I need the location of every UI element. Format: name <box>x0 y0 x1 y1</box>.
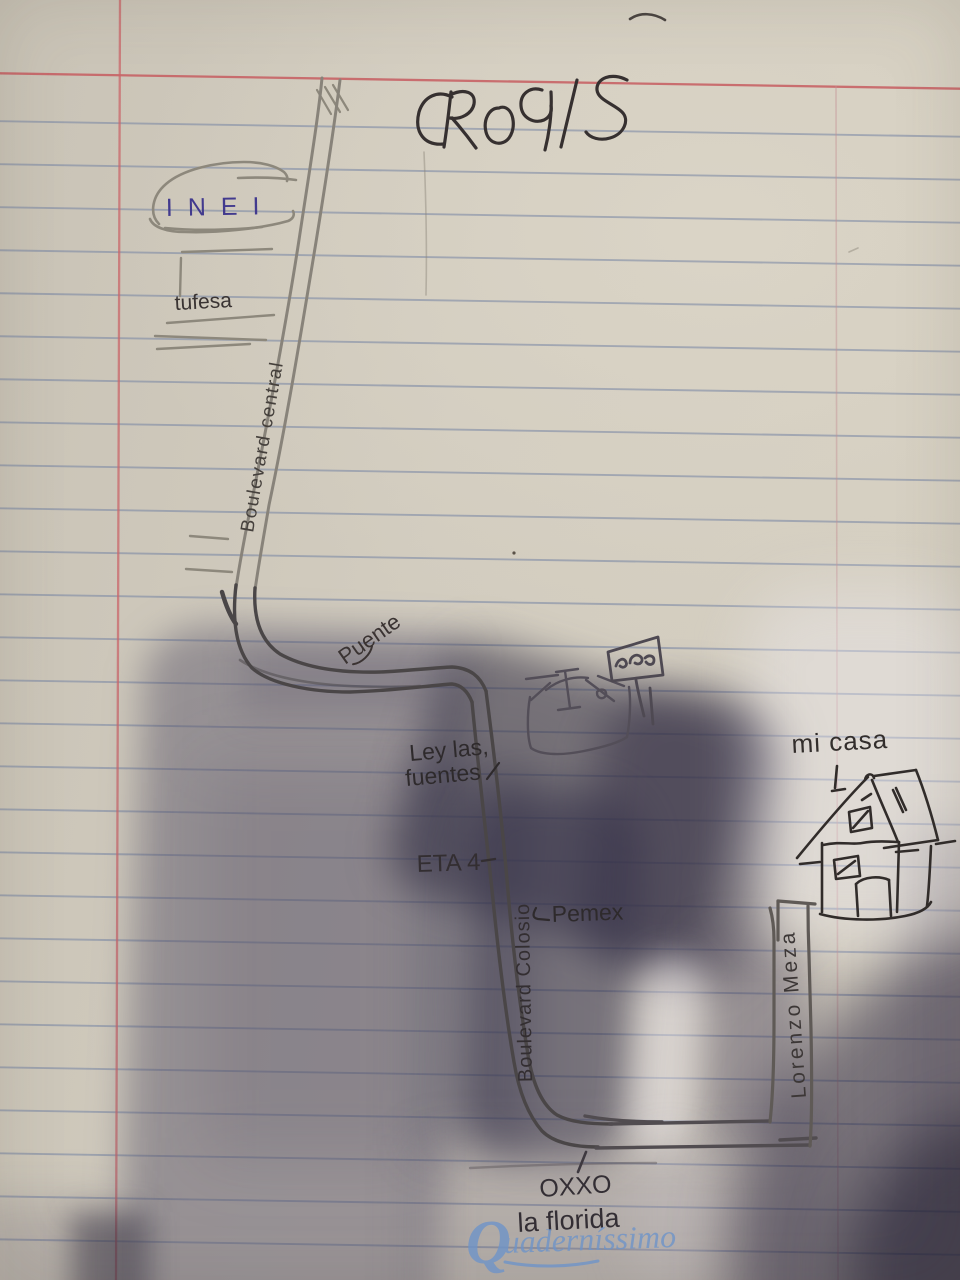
svg-text:Puente: Puente <box>334 609 405 669</box>
svg-text:tufesa: tufesa <box>174 289 233 315</box>
svg-text:mi casa: mi casa <box>791 724 889 759</box>
svg-text:INEI: INEI <box>166 192 275 222</box>
svg-text:uaderníssimo: uaderníssimo <box>503 1218 677 1260</box>
svg-text:Boulevard Colosio: Boulevard Colosio <box>512 903 537 1083</box>
svg-text:ETA 4: ETA 4 <box>416 849 480 878</box>
svg-text:OXXO: OXXO <box>538 1170 612 1203</box>
svg-text:Lorenzo Meza: Lorenzo Meza <box>776 929 811 1099</box>
svg-text:fuentes: fuentes <box>404 759 481 791</box>
svg-text:Pemex: Pemex <box>551 898 624 926</box>
